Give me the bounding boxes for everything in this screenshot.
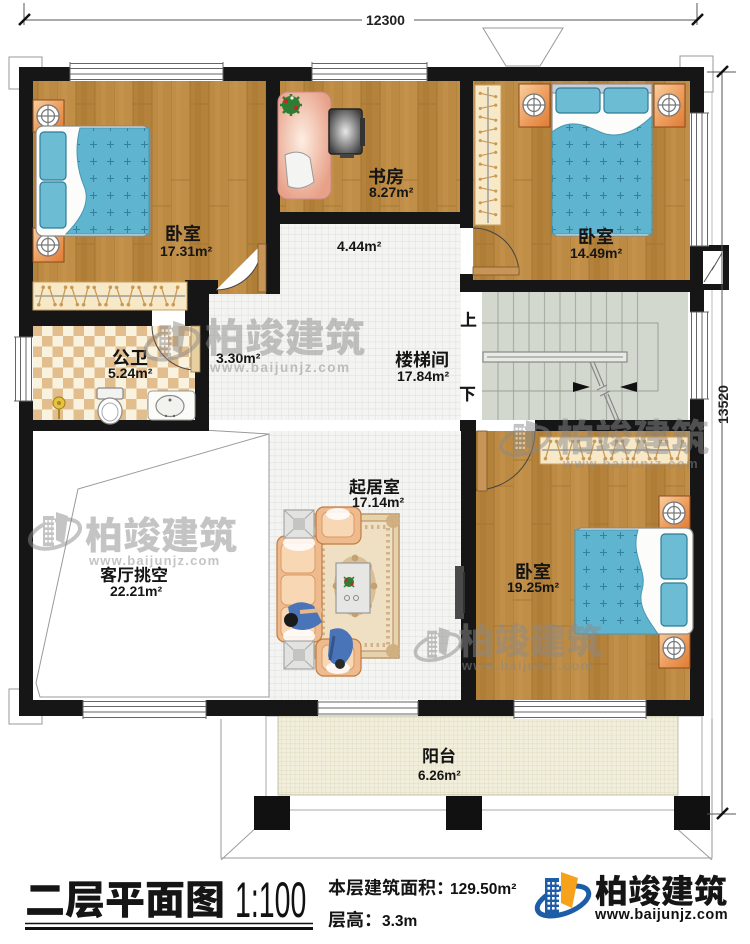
svg-text:13520: 13520 bbox=[715, 385, 731, 424]
svg-text:17.84m²: 17.84m² bbox=[397, 368, 449, 384]
svg-text:17.31m²: 17.31m² bbox=[160, 243, 212, 259]
svg-text:22.21m²: 22.21m² bbox=[110, 583, 162, 599]
svg-text:www.baijunjz.com: www.baijunjz.com bbox=[461, 658, 593, 673]
svg-text:www.baijunjz.com: www.baijunjz.com bbox=[562, 456, 699, 471]
svg-text:4.44m²: 4.44m² bbox=[337, 238, 382, 254]
svg-text:5.24m²: 5.24m² bbox=[108, 365, 153, 381]
svg-text:8.27m²: 8.27m² bbox=[369, 184, 414, 200]
svg-text:17.14m²: 17.14m² bbox=[352, 494, 404, 510]
svg-text:www.baijunjz.com: www.baijunjz.com bbox=[209, 360, 351, 375]
svg-text:129.50m²: 129.50m² bbox=[450, 881, 516, 898]
svg-text:www.baijunjz.com: www.baijunjz.com bbox=[594, 907, 728, 923]
svg-text:19.25m²: 19.25m² bbox=[507, 579, 559, 595]
svg-text:14.49m²: 14.49m² bbox=[570, 245, 622, 261]
svg-text:1:100: 1:100 bbox=[235, 872, 306, 929]
svg-text:12300: 12300 bbox=[366, 12, 405, 28]
svg-text:6.26m²: 6.26m² bbox=[418, 768, 461, 783]
svg-text:3.3m: 3.3m bbox=[382, 913, 417, 930]
svg-text:www.baijunjz.com: www.baijunjz.com bbox=[88, 553, 220, 568]
